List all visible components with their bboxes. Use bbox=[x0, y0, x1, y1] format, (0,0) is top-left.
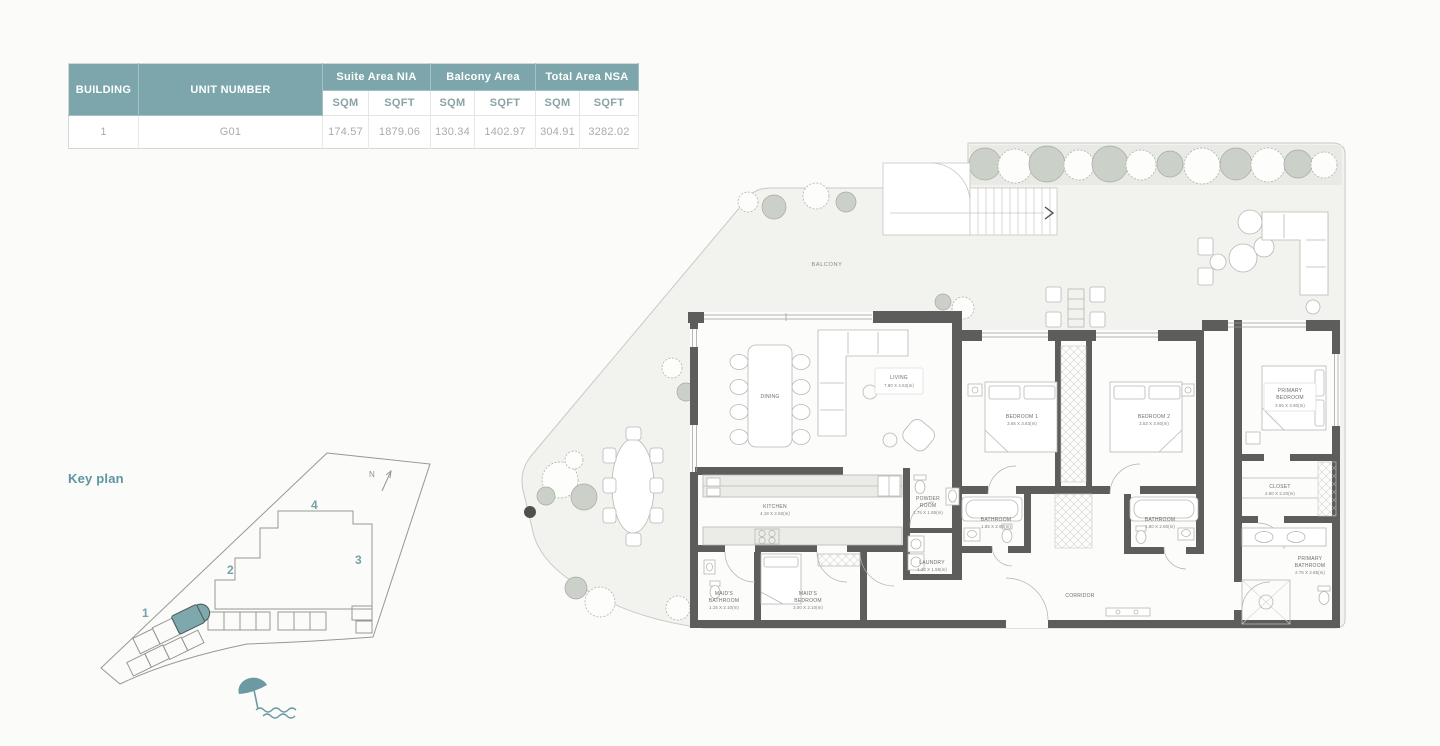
floorplan-drawing: BALCONY DINING LIVING 7.80 X 4.53(m) KIT… bbox=[518, 140, 1350, 640]
col-header-building: BUILDING bbox=[69, 64, 139, 116]
label-bedroom2: BEDROOM 2 bbox=[1138, 414, 1170, 420]
label-powder-room-dims: 1.75 X 1.85(m) bbox=[913, 510, 943, 515]
label-dining: DINING bbox=[761, 394, 780, 400]
unit-area-table: BUILDING UNIT NUMBER Suite Area NIA Balc… bbox=[68, 63, 639, 149]
label-living: LIVING bbox=[890, 375, 908, 381]
label-kitchen-dims: 4.18 X 2.92(m) bbox=[760, 511, 790, 516]
label-primary-bedroom-2: BEDROOM bbox=[1276, 395, 1304, 401]
subheader-balcony-sqm: SQM bbox=[431, 91, 475, 116]
cell-unit: G01 bbox=[139, 116, 323, 149]
label-primary-bathroom-2: BATHROOM bbox=[1295, 563, 1326, 569]
keyplan-label-building-4: 4 bbox=[311, 498, 318, 512]
subheader-total-sqft: SQFT bbox=[580, 91, 639, 116]
label-bathroom2: BATHROOM bbox=[1145, 517, 1176, 523]
subheader-suite-sqft: SQFT bbox=[369, 91, 431, 116]
label-bedroom1-dims: 3.65 X 3.83(m) bbox=[1007, 421, 1037, 426]
label-maids-bedroom-2: BEDROOM bbox=[794, 598, 822, 604]
keyplan-label-building-2: 2 bbox=[227, 563, 234, 577]
col-group-suite-area: Suite Area NIA bbox=[323, 64, 431, 91]
label-balcony: BALCONY bbox=[812, 262, 843, 268]
cell-balcony-sqm: 130.34 bbox=[431, 116, 475, 149]
label-bedroom1: BEDROOM 1 bbox=[1006, 414, 1038, 420]
floorplan-page: BUILDING UNIT NUMBER Suite Area NIA Balc… bbox=[0, 0, 1440, 746]
beach-umbrella-icon bbox=[238, 678, 296, 718]
col-header-unit-number: UNIT NUMBER bbox=[139, 64, 323, 116]
cell-suite-sqm: 174.57 bbox=[323, 116, 369, 149]
label-primary-bathroom-1: PRIMARY bbox=[1298, 556, 1323, 562]
corridor-closet bbox=[1055, 494, 1092, 548]
label-maids-bathroom-dims: 1.15 X 2.10(m) bbox=[709, 605, 739, 610]
label-laundry: LAUNDRY bbox=[919, 560, 945, 566]
keyplan-building-1-cluster bbox=[117, 600, 221, 677]
label-bathroom1: BATHROOM bbox=[981, 517, 1012, 523]
label-bathroom1-dims: 1.85 X 2.90(m) bbox=[981, 524, 1011, 529]
subheader-suite-sqm: SQM bbox=[323, 91, 369, 116]
bedroom-wardrobe bbox=[1061, 346, 1086, 482]
corridor-console bbox=[1106, 608, 1150, 616]
living-label-card bbox=[875, 368, 923, 394]
col-group-balcony-area: Balcony Area bbox=[431, 64, 536, 91]
keyplan-unit-row bbox=[208, 606, 372, 633]
label-primary-bedroom-dims: 3.55 X 3.90(m) bbox=[1275, 403, 1305, 408]
keyplan-label-building-3: 3 bbox=[355, 553, 362, 567]
subheader-total-sqm: SQM bbox=[536, 91, 580, 116]
label-powder-room-2: ROOM bbox=[920, 503, 937, 509]
label-maids-bathroom-2: BATHROOM bbox=[709, 598, 740, 604]
col-group-total-area: Total Area NSA bbox=[536, 64, 639, 91]
label-laundry-dims: 1.20 X 1.55(m) bbox=[917, 567, 947, 572]
keyplan-label-building-1: 1 bbox=[142, 606, 149, 620]
label-powder-room-1: POWDER bbox=[916, 496, 940, 502]
label-primary-bedroom-1: PRIMARY bbox=[1278, 388, 1303, 394]
label-kitchen: KITCHEN bbox=[763, 504, 787, 510]
cell-building: 1 bbox=[69, 116, 139, 149]
label-corridor: CORRIDOR bbox=[1065, 593, 1094, 599]
label-closet: CLOSET bbox=[1269, 484, 1291, 490]
tree-strip bbox=[969, 145, 1342, 185]
keyplan-building-4-outline bbox=[215, 511, 372, 609]
keyplan-map: 1 2 3 4 N bbox=[60, 445, 460, 740]
cell-suite-sqft: 1879.06 bbox=[369, 116, 431, 149]
label-bathroom2-dims: 1.80 X 2.60(m) bbox=[1145, 524, 1175, 529]
subheader-balcony-sqft: SQFT bbox=[475, 91, 536, 116]
label-maids-bedroom-dims: 3.00 X 2.10(m) bbox=[793, 605, 823, 610]
label-closet-dims: 2.80 X 2.20(m) bbox=[1265, 491, 1295, 496]
label-maids-bathroom-1: MAID'S bbox=[715, 591, 734, 597]
label-bedroom2-dims: 3.53 X 3.60(m) bbox=[1139, 421, 1169, 426]
svg-text:N: N bbox=[369, 470, 375, 479]
label-living-dims: 7.80 X 4.53(m) bbox=[884, 383, 914, 388]
label-primary-bathroom-dims: 2.75 X 2.85(m) bbox=[1295, 570, 1325, 575]
north-arrow-icon: N bbox=[369, 470, 391, 491]
label-maids-bedroom-1: MAID'S bbox=[799, 591, 818, 597]
site-marker-dot bbox=[524, 506, 536, 518]
